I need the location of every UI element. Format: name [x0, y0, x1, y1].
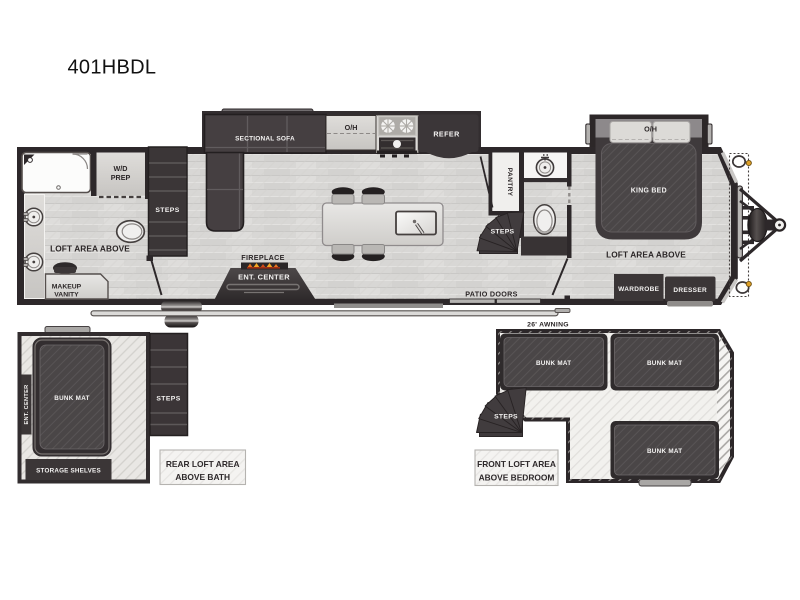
- svg-text:PATIO DOORS: PATIO DOORS: [465, 290, 518, 299]
- svg-text:WARDROBE: WARDROBE: [618, 286, 659, 293]
- svg-text:W/D: W/D: [114, 164, 128, 173]
- svg-text:KING BED: KING BED: [631, 188, 667, 195]
- svg-text:PANTRY: PANTRY: [506, 168, 513, 197]
- svg-text:BUNK MAT: BUNK MAT: [536, 360, 572, 367]
- svg-text:ABOVE BATH: ABOVE BATH: [175, 472, 230, 482]
- svg-text:FIREPLACE: FIREPLACE: [241, 253, 284, 262]
- svg-text:SECTIONAL SOFA: SECTIONAL SOFA: [235, 136, 295, 143]
- svg-text:LOFT AREA ABOVE: LOFT AREA ABOVE: [50, 244, 130, 254]
- svg-text:ABOVE BEDROOM: ABOVE BEDROOM: [479, 473, 555, 483]
- svg-text:BUNK MAT: BUNK MAT: [647, 360, 683, 367]
- svg-text:REFER: REFER: [433, 130, 460, 139]
- svg-text:REAR LOFT AREA: REAR LOFT AREA: [166, 459, 240, 469]
- svg-text:STEPS: STEPS: [156, 396, 180, 403]
- svg-text:ENT. CENTER: ENT. CENTER: [238, 273, 290, 282]
- svg-text:BUNK MAT: BUNK MAT: [647, 448, 683, 455]
- svg-text:FRONT LOFT AREA: FRONT LOFT AREA: [477, 459, 556, 469]
- svg-text:STORAGE SHELVES: STORAGE SHELVES: [36, 468, 101, 475]
- svg-text:VANITY: VANITY: [54, 292, 79, 299]
- svg-text:LOFT AREA ABOVE: LOFT AREA ABOVE: [606, 250, 686, 260]
- svg-text:BUNK MAT: BUNK MAT: [54, 395, 90, 402]
- svg-text:ENT. CENTER: ENT. CENTER: [24, 385, 30, 425]
- svg-text:26' AWNING: 26' AWNING: [527, 322, 569, 329]
- svg-text:STEPS: STEPS: [491, 229, 515, 236]
- svg-text:STEPS: STEPS: [155, 207, 179, 214]
- svg-text:O/H: O/H: [345, 123, 358, 132]
- svg-text:STEPS: STEPS: [494, 414, 518, 421]
- svg-text:401HBDL: 401HBDL: [68, 57, 157, 79]
- svg-text:DRESSER: DRESSER: [673, 287, 707, 294]
- svg-text:MAKEUP: MAKEUP: [52, 284, 82, 291]
- svg-text:PREP: PREP: [111, 173, 131, 182]
- svg-text:O/H: O/H: [644, 125, 657, 134]
